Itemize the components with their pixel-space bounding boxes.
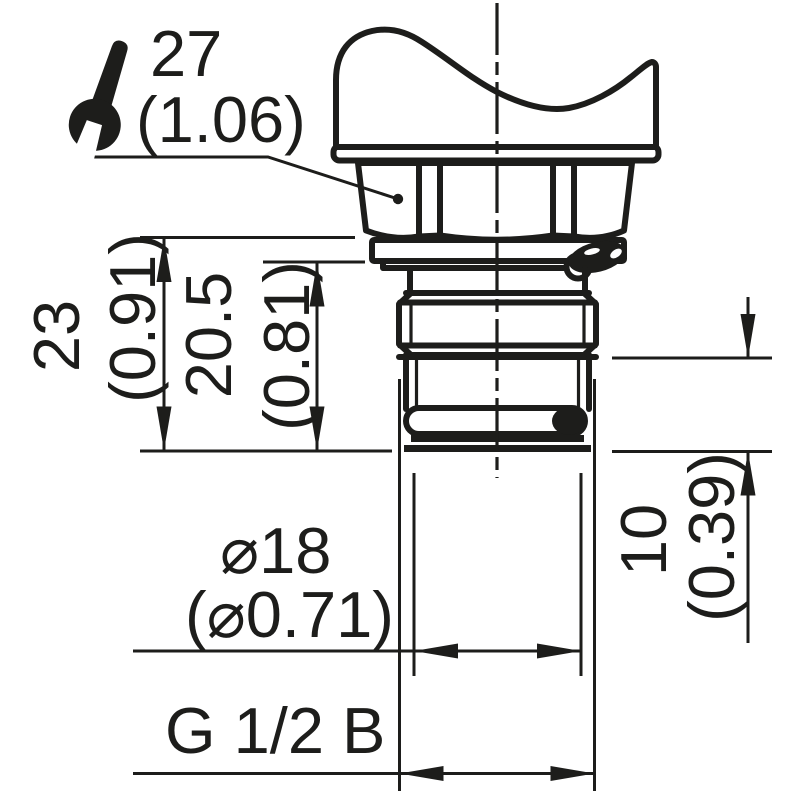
leader-dot [393,194,403,204]
wrench-icon [60,33,147,165]
dim-20-5-inch: (0.81) [250,261,323,431]
wrench-size-mm: 27 [150,17,222,90]
dimension-drawing: 27 (1.06) 23 (0.91) 20.5 (0.81) 10 (0.39… [0,0,800,800]
dim-23-inch: (0.91) [96,233,169,403]
dim-23-mm: 23 [20,300,93,372]
wrench-size-inch: (1.06) [136,83,306,156]
part-outline [334,3,659,478]
dim-10-inch: (0.39) [675,452,748,622]
dim-20-5-mm: 20.5 [172,272,245,399]
dim-10-mm: 10 [607,504,680,576]
dim-d18-inch: (⌀0.71) [185,578,394,651]
drawing-canvas: 27 (1.06) 23 (0.91) 20.5 (0.81) 10 (0.39… [0,0,800,800]
dim-d18-mm: ⌀18 [220,514,331,587]
thread-designation: G 1/2 B [165,694,385,767]
